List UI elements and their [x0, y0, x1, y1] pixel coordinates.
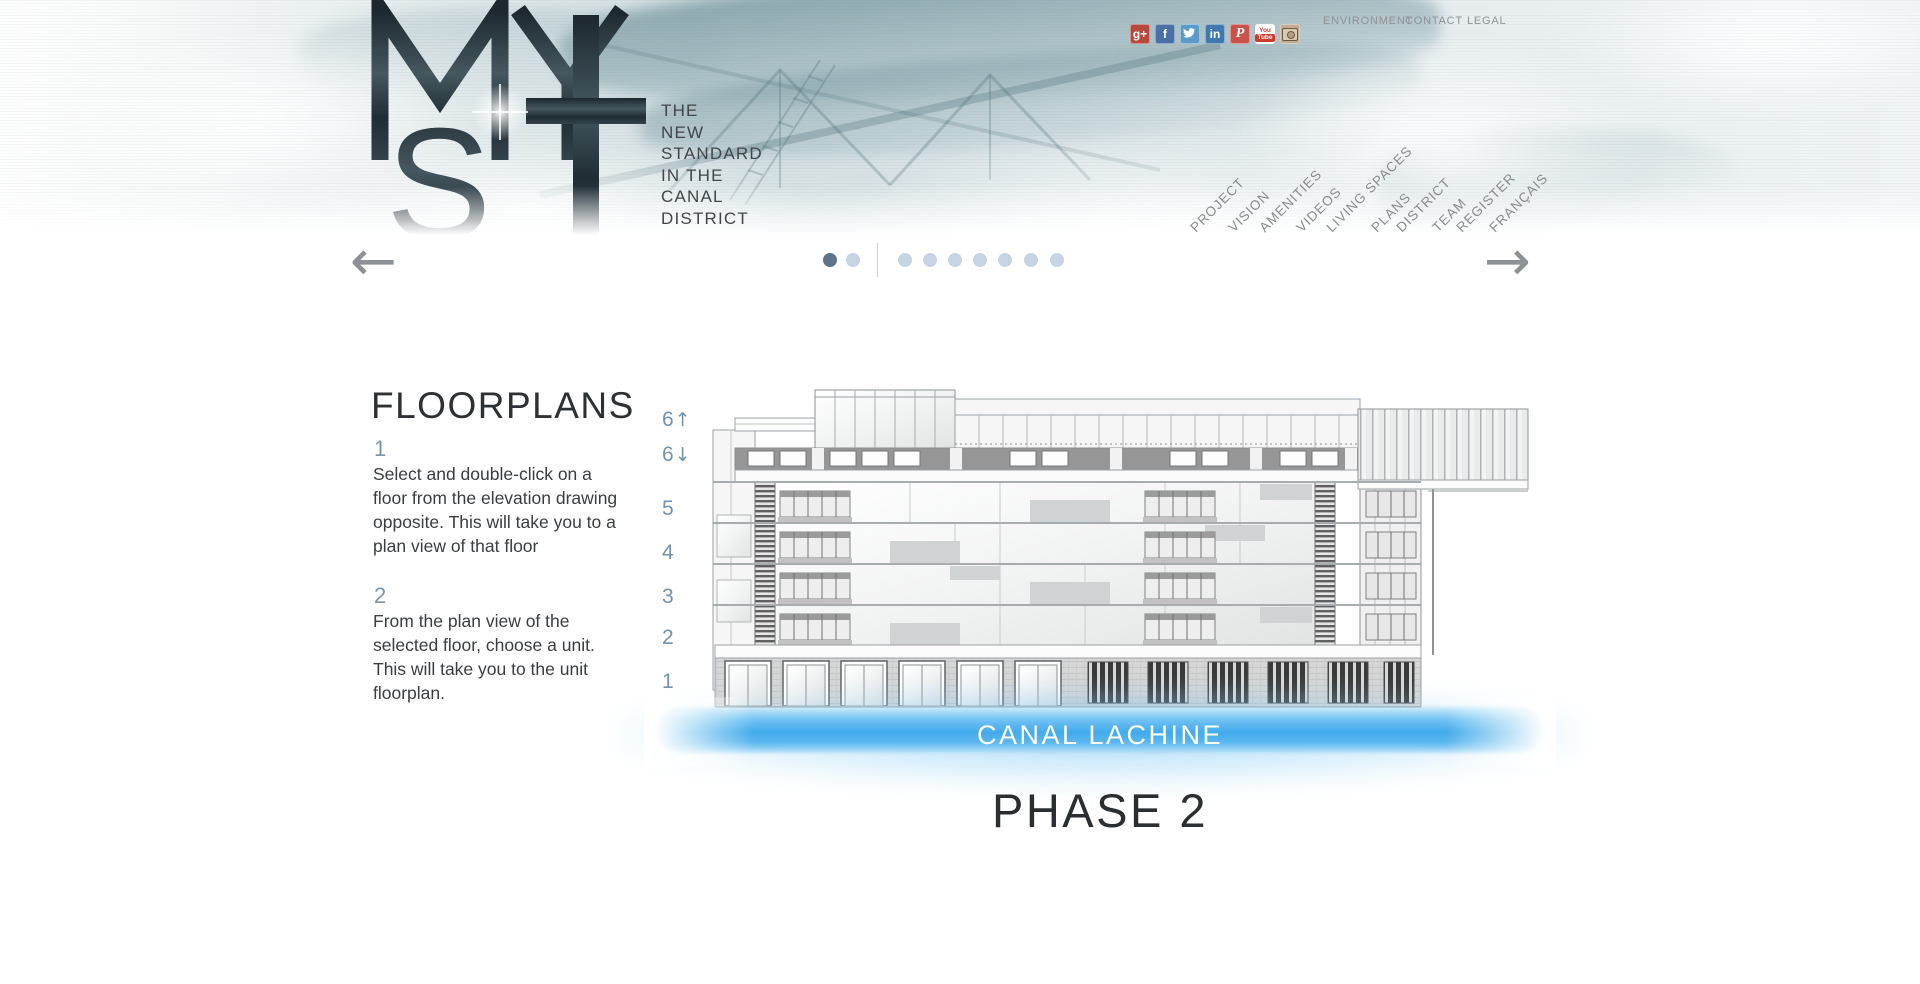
twitter-bird	[1183, 28, 1197, 40]
top-link-legal[interactable]: LEGAL	[1467, 15, 1506, 27]
carousel-dot-active[interactable]	[823, 253, 837, 267]
instagram-icon[interactable]	[1280, 24, 1300, 44]
youtube-glyph-top: You	[1259, 27, 1271, 34]
tagline: THE NEW STANDARD IN THE CANAL DISTRICT	[661, 100, 763, 229]
carousel-dot[interactable]	[1024, 253, 1038, 267]
banner-bottom-fade	[0, 186, 1920, 242]
carousel-next-arrow[interactable]: →	[1484, 234, 1531, 290]
floorplans-title: FLOORPLANS	[371, 385, 635, 427]
instagram-camera	[1282, 28, 1298, 41]
up-arrow-icon: ↑	[675, 409, 691, 431]
canal-water-band: CANAL LACHINE	[648, 703, 1552, 761]
facebook-glyph: f	[1163, 28, 1167, 40]
step-2-text: From the plan view of the selected floor…	[373, 609, 625, 705]
carousel-dot[interactable]	[846, 253, 860, 267]
tagline-line: THE	[661, 100, 763, 122]
top-link-environment[interactable]: ENVIRONMENT	[1323, 15, 1413, 27]
linkedin-glyph: in	[1210, 28, 1221, 40]
step-1-text: Select and double-click on a floor from …	[373, 462, 625, 558]
google-plus-icon[interactable]: g+	[1130, 24, 1150, 44]
tagline-line: CANAL	[661, 186, 763, 208]
tagline-line: IN THE	[661, 165, 763, 187]
carousel-dot[interactable]	[1050, 253, 1064, 267]
carousel-dot[interactable]	[998, 253, 1012, 267]
phase-title: PHASE 2	[648, 783, 1552, 838]
carousel-dot[interactable]	[898, 253, 912, 267]
pinterest-glyph: P	[1236, 27, 1245, 41]
twitter-icon[interactable]	[1180, 24, 1200, 44]
dot-group-divider	[877, 243, 878, 277]
top-link-contact[interactable]: CONTACT	[1405, 15, 1463, 27]
google-plus-glyph: g+	[1133, 28, 1147, 40]
tagline-line: DISTRICT	[661, 208, 763, 230]
canal-label: CANAL LACHINE	[648, 720, 1552, 751]
carousel-dot[interactable]	[948, 253, 962, 267]
carousel-dot[interactable]	[923, 253, 937, 267]
carousel-prev-arrow[interactable]: ←	[350, 234, 397, 290]
header-banner	[0, 0, 1920, 242]
step-2-number: 2	[374, 583, 386, 609]
cloud-blob	[1560, 0, 1920, 120]
facebook-icon[interactable]: f	[1155, 24, 1175, 44]
tagline-line: NEW	[661, 122, 763, 144]
youtube-glyph-bottom: Tube	[1255, 34, 1274, 42]
down-arrow-icon: ↓	[675, 444, 691, 466]
page: S THE NEW STANDARD IN THE CANAL DISTRICT…	[0, 0, 1920, 984]
building-elevation-drawing[interactable]	[700, 385, 1560, 715]
watercolor-wash	[560, 0, 1440, 115]
pinterest-icon[interactable]: P	[1230, 24, 1250, 44]
step-1-number: 1	[374, 436, 386, 462]
linkedin-icon[interactable]: in	[1205, 24, 1225, 44]
tagline-line: STANDARD	[661, 143, 763, 165]
youtube-icon[interactable]: You Tube	[1255, 24, 1275, 44]
carousel-dot[interactable]	[973, 253, 987, 267]
